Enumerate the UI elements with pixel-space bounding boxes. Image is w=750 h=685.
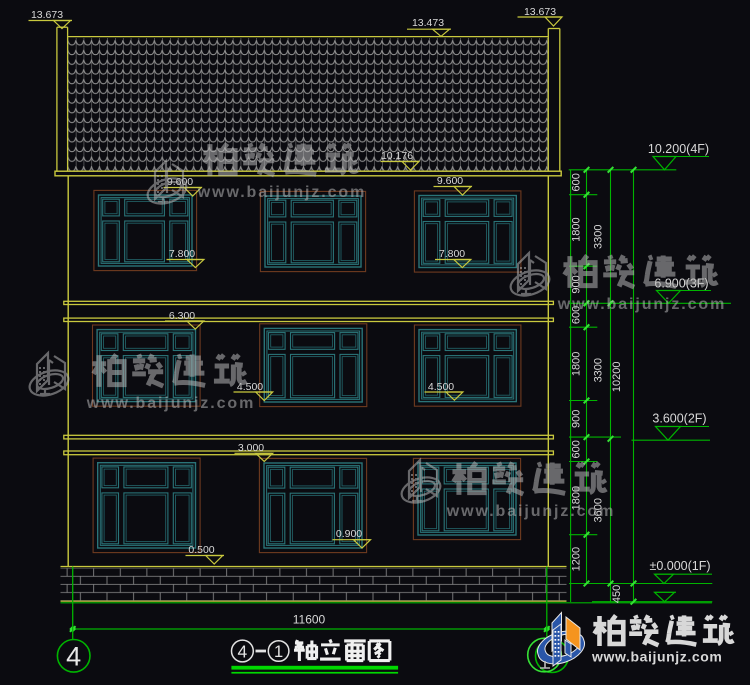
svg-text:7.800: 7.800 — [439, 248, 465, 260]
svg-text:1200: 1200 — [571, 547, 583, 571]
svg-text:1800: 1800 — [571, 217, 583, 241]
svg-text:7.800: 7.800 — [169, 248, 195, 260]
svg-text:13.473: 13.473 — [412, 17, 444, 29]
svg-text:1800: 1800 — [571, 352, 583, 376]
svg-text:www.baijunjz.com: www.baijunjz.com — [591, 649, 722, 665]
svg-text:11600: 11600 — [293, 613, 326, 627]
svg-text:4: 4 — [66, 642, 81, 672]
svg-text:www.baijunjz.com: www.baijunjz.com — [86, 395, 256, 412]
svg-text:www.baijunjz.com: www.baijunjz.com — [197, 184, 367, 201]
svg-text:4.500: 4.500 — [428, 381, 454, 393]
svg-text:3.000: 3.000 — [238, 442, 264, 454]
svg-text:9.600: 9.600 — [437, 175, 463, 187]
svg-text:0.900: 0.900 — [336, 528, 362, 540]
svg-text:1: 1 — [274, 643, 283, 661]
svg-text:www.baijunjz.com: www.baijunjz.com — [557, 296, 727, 313]
svg-text:0.500: 0.500 — [188, 544, 214, 556]
svg-text:4: 4 — [238, 642, 248, 662]
svg-text:10.200(4F): 10.200(4F) — [648, 142, 709, 156]
svg-text:13.673: 13.673 — [524, 6, 556, 18]
svg-text:900: 900 — [571, 410, 583, 428]
svg-text:600: 600 — [571, 173, 583, 191]
svg-text:3300: 3300 — [593, 358, 605, 382]
svg-text:13.673: 13.673 — [31, 9, 63, 21]
svg-text:6.300: 6.300 — [169, 310, 195, 322]
svg-text:450: 450 — [611, 585, 623, 603]
svg-text:10200: 10200 — [611, 362, 623, 393]
svg-text:±0.000(1F): ±0.000(1F) — [649, 559, 710, 573]
svg-text:10.176: 10.176 — [381, 150, 413, 162]
svg-text:3.600(2F): 3.600(2F) — [652, 412, 706, 426]
svg-text:3300: 3300 — [593, 225, 605, 249]
svg-text:600: 600 — [571, 440, 583, 458]
svg-text:www.baijunjz.com: www.baijunjz.com — [446, 503, 616, 520]
